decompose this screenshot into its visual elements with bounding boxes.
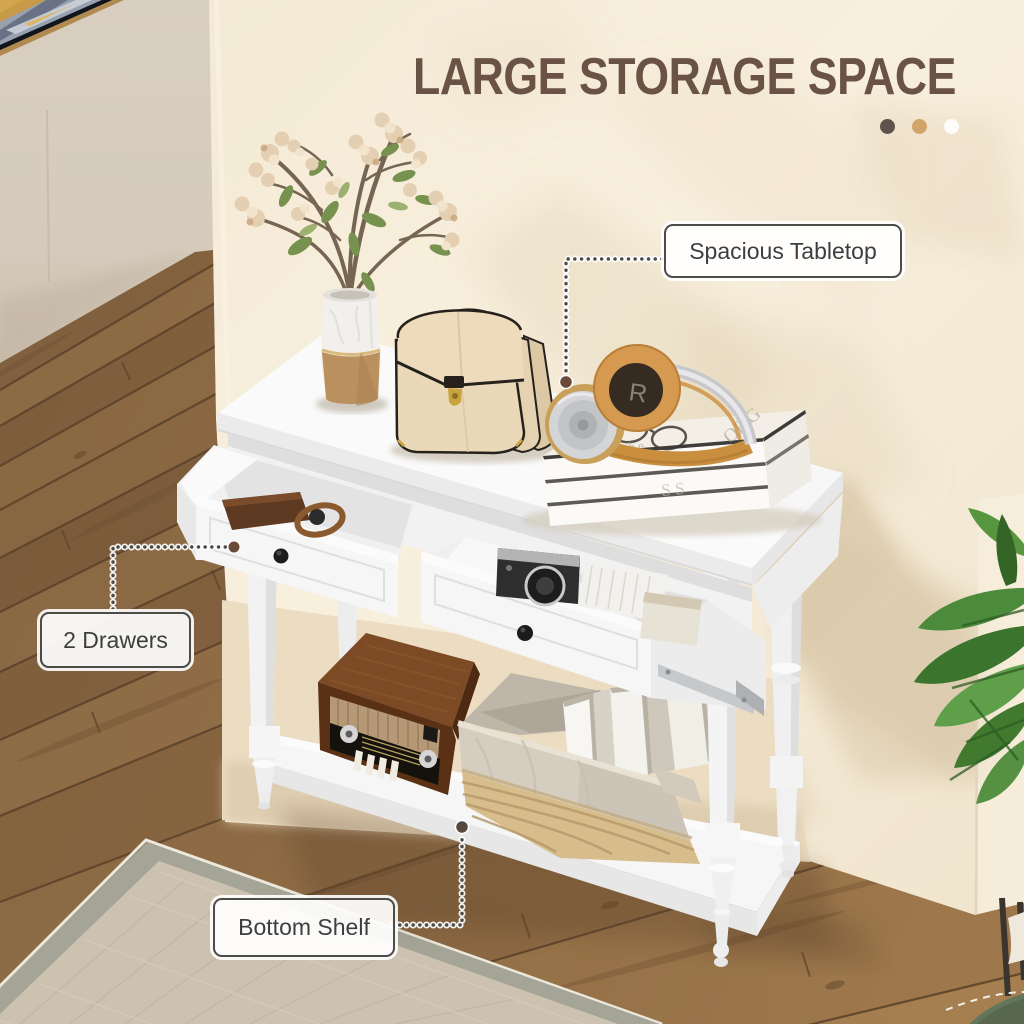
svg-text:S S: S S: [660, 479, 685, 500]
svg-text:R: R: [627, 378, 649, 408]
